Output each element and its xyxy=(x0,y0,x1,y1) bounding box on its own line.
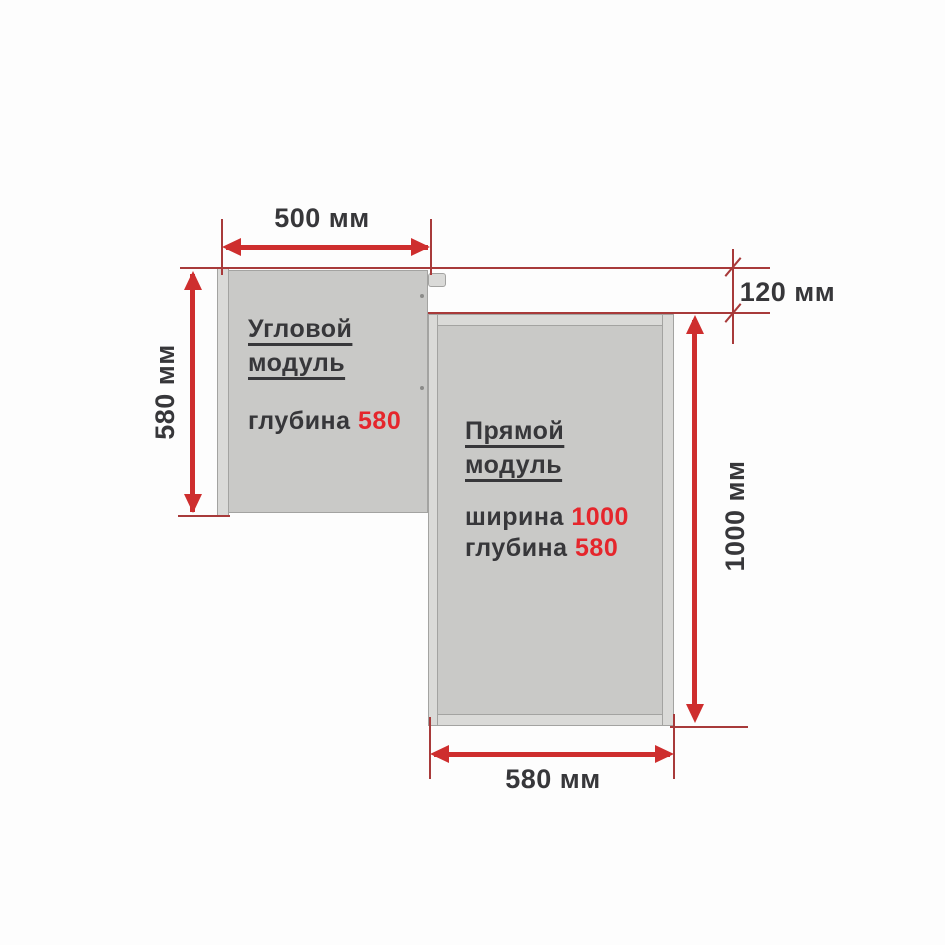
spec-label: глубина xyxy=(465,534,568,562)
straight-module-title-line1: Прямой xyxy=(465,414,564,448)
dimension-label-right-height: 1000 мм xyxy=(718,416,752,616)
spec-label: глубина xyxy=(248,407,351,435)
corner-module-specs: глубина 580 xyxy=(248,406,401,437)
straight-module-bottom-edge xyxy=(428,714,674,726)
straight-module-top-edge xyxy=(428,314,674,326)
straight-module-specs: ширина 1000 глубина 580 xyxy=(465,502,629,564)
arrowhead-right-icon xyxy=(411,238,430,256)
dimension-label-right-offset: 120 мм xyxy=(740,277,835,307)
extension-line-top-right xyxy=(430,219,432,275)
corner-module-hinge-tab xyxy=(428,273,446,287)
dimension-line-left-depth xyxy=(190,274,195,512)
straight-module-right-edge xyxy=(662,314,674,726)
corner-module-title: Угловой модуль xyxy=(248,312,352,380)
straight-module-spec-width: ширина 1000 xyxy=(465,502,629,533)
corner-module-screw-dot xyxy=(420,294,424,298)
extension-line-straight-top xyxy=(428,312,770,314)
straight-module-spec-depth: глубина 580 xyxy=(465,533,629,564)
arrowhead-left-icon xyxy=(430,745,449,763)
straight-module-left-edge xyxy=(428,314,438,726)
dimension-label-bottom-width: 580 мм xyxy=(468,764,638,794)
spec-value: 1000 xyxy=(571,503,629,531)
arrowhead-right-icon xyxy=(655,745,674,763)
dimension-line-bottom-width xyxy=(434,752,670,757)
corner-module-title-line1: Угловой xyxy=(248,312,352,346)
dimension-label-top-width: 500 мм xyxy=(237,203,407,233)
arrowhead-up-icon xyxy=(686,315,704,334)
dimension-line-right-height xyxy=(692,320,697,708)
arrowhead-down-icon xyxy=(184,494,202,513)
straight-module-title: Прямой модуль xyxy=(465,414,564,482)
arrowhead-left-icon xyxy=(222,238,241,256)
corner-module-spec-depth: глубина 580 xyxy=(248,406,401,437)
diagram-canvas: Прямой модуль ширина 1000 глубина 580 Уг… xyxy=(0,0,945,945)
dimension-label-left-depth: 580 мм xyxy=(148,307,182,477)
straight-module-title-line2: модуль xyxy=(465,448,564,482)
spec-label: ширина xyxy=(465,503,564,531)
extension-line-corner-bottom xyxy=(178,515,230,517)
corner-module-title-line2: модуль xyxy=(248,346,352,380)
dimension-line-top-width xyxy=(226,245,428,250)
arrowhead-up-icon xyxy=(184,271,202,290)
extension-line-corner-top xyxy=(180,267,770,269)
spec-value: 580 xyxy=(575,534,618,562)
spec-value: 580 xyxy=(358,407,401,435)
corner-module-screw-dot xyxy=(420,386,424,390)
corner-module xyxy=(228,270,428,513)
extension-line-straight-bottom-right xyxy=(670,726,748,728)
arrowhead-down-icon xyxy=(686,704,704,723)
